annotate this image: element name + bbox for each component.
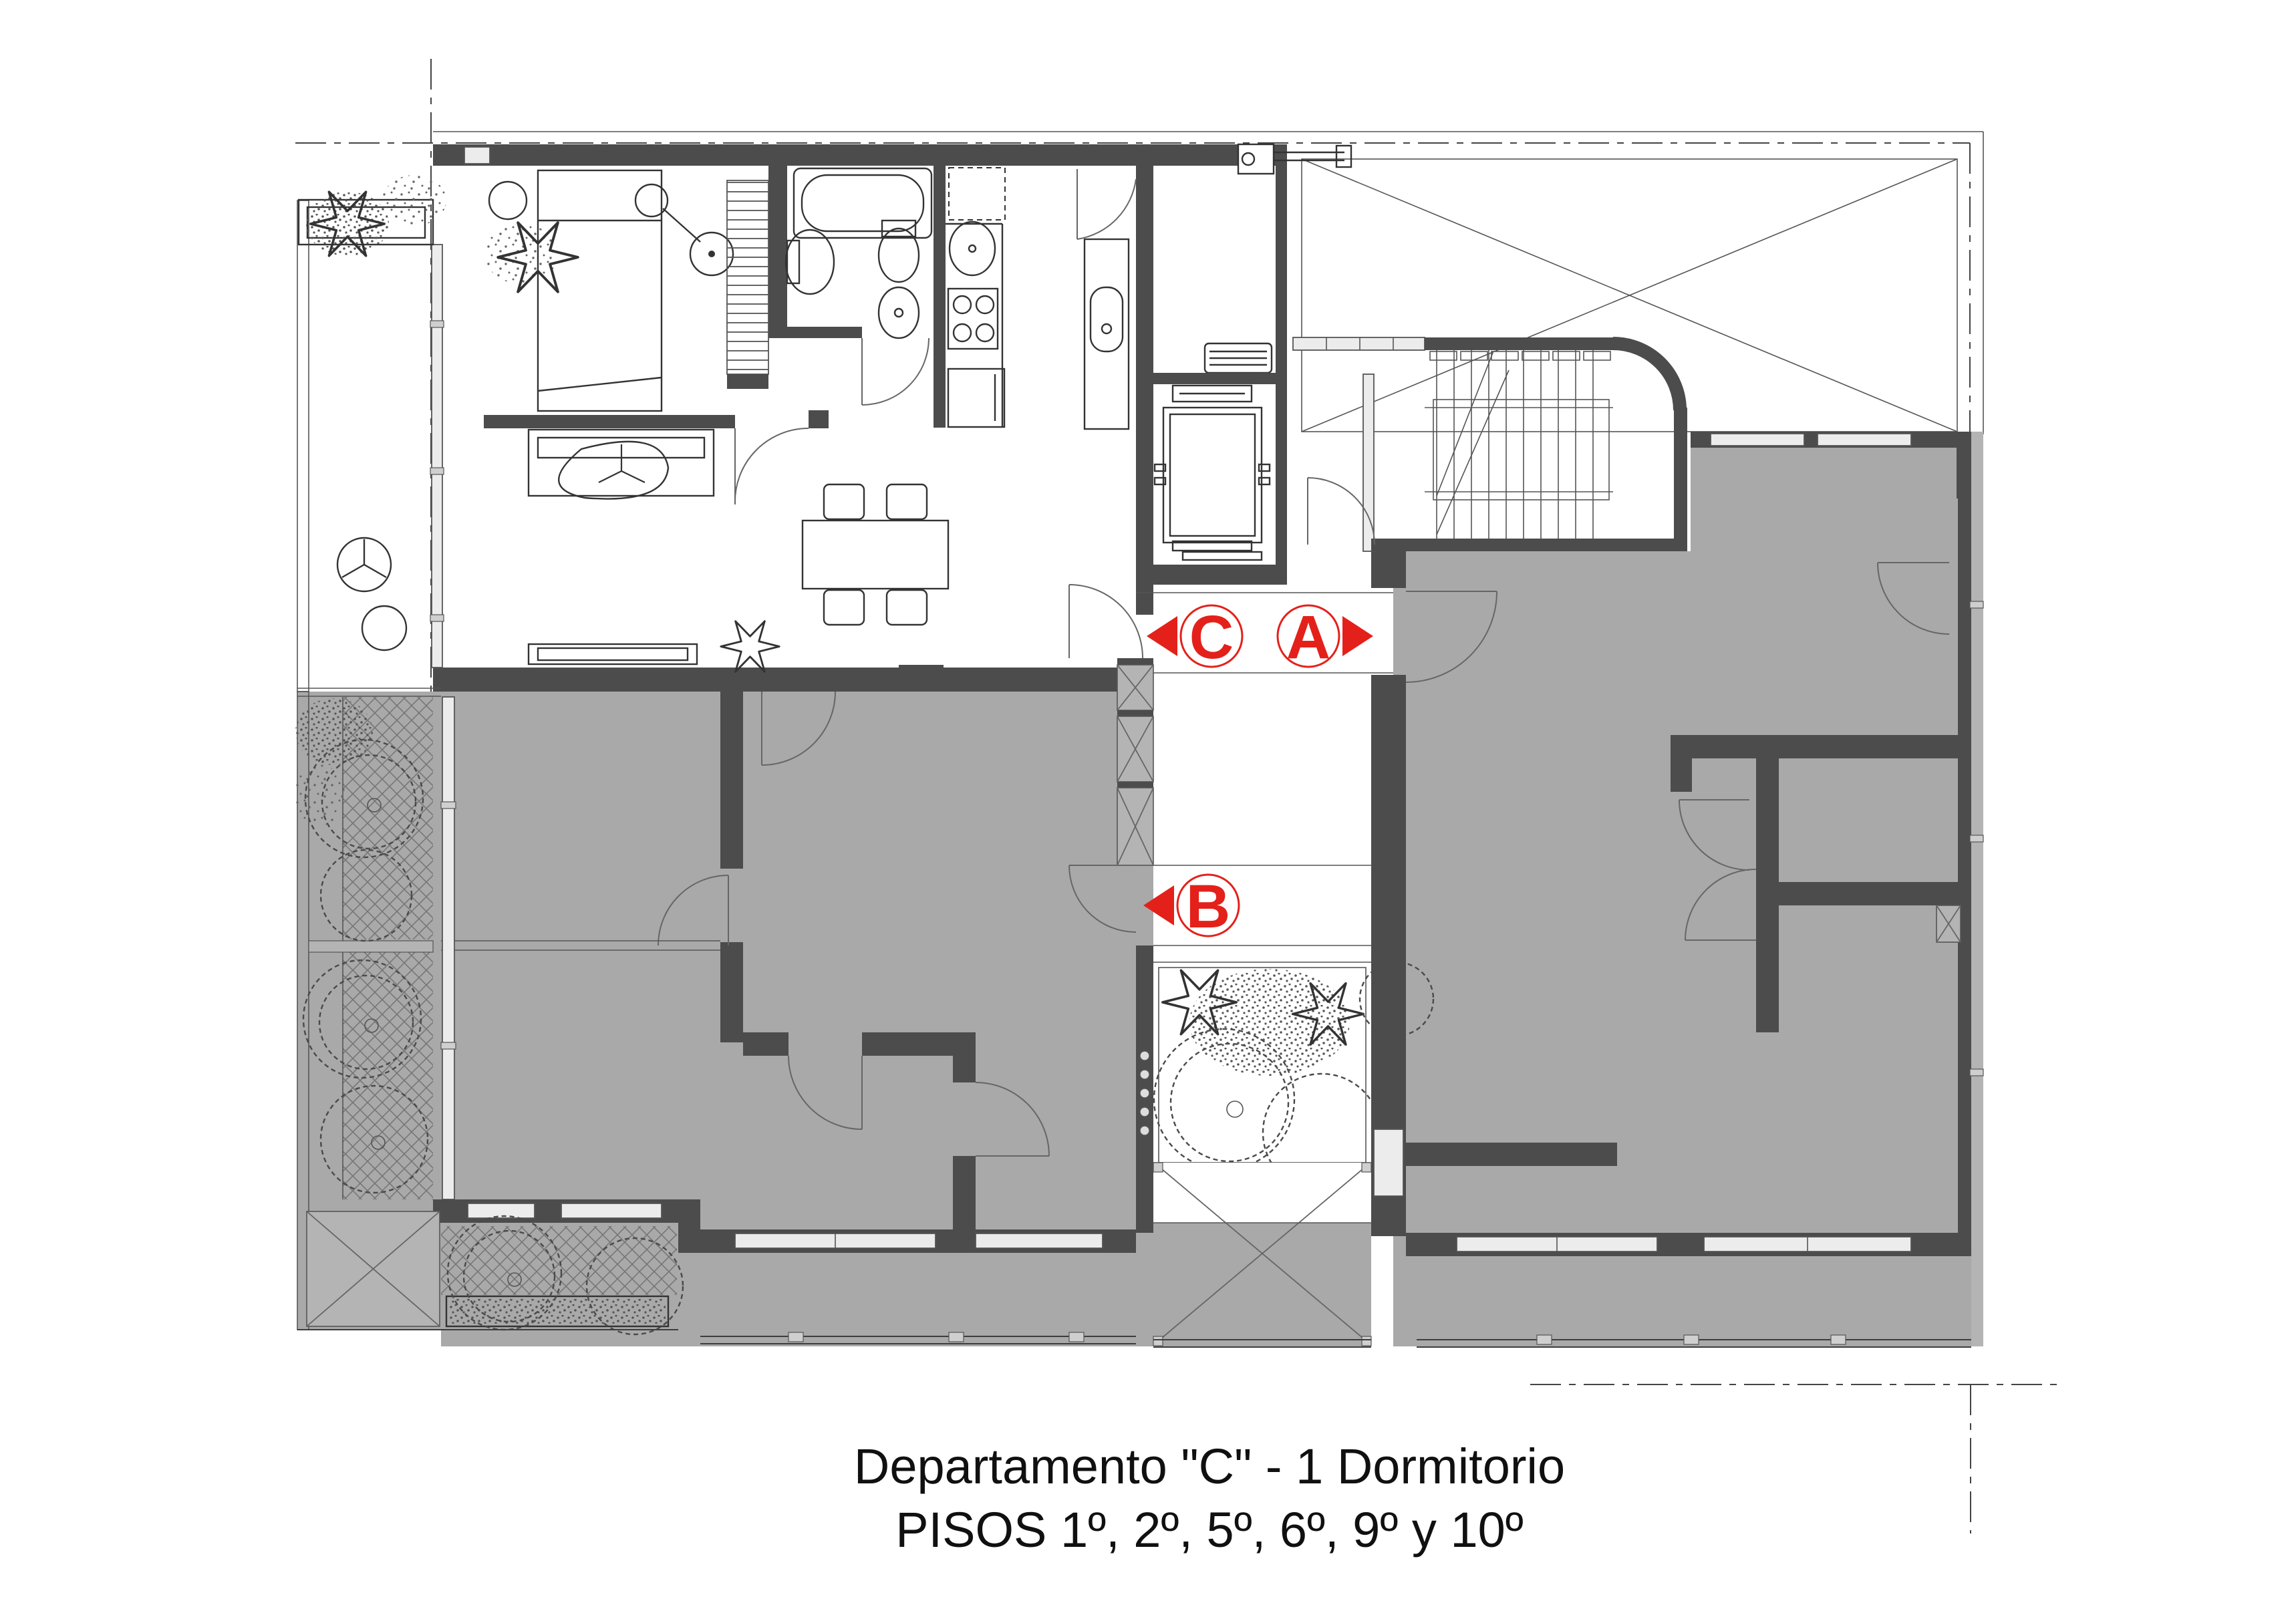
caption-line-2: PISOS 1º, 2º, 5º, 6º, 9º y 10º xyxy=(895,1502,1524,1558)
apartment-c-walls xyxy=(433,144,1287,692)
unit-b-marker-label: B xyxy=(1186,873,1230,941)
closet xyxy=(727,180,768,374)
floor-plan-canvas: C A B Departamento "C" - 1 Dormitorio PI… xyxy=(0,0,2296,1609)
stairs xyxy=(1293,337,1687,551)
air-void xyxy=(1302,159,1957,432)
unit-a-marker-label: A xyxy=(1286,603,1330,672)
service-shafts xyxy=(1117,658,1153,865)
unit-c-marker-label: C xyxy=(1189,603,1234,672)
apartment-c-windows xyxy=(430,245,444,668)
elevator-car xyxy=(1163,408,1262,543)
elevator-guides xyxy=(1155,464,1270,484)
unit-markers: C A B xyxy=(1143,603,1373,941)
stair-treads xyxy=(1425,350,1613,539)
unit-c-arrow-icon xyxy=(1147,616,1177,656)
kitchen-sink xyxy=(950,222,995,275)
dining-table xyxy=(803,521,948,589)
caption: Departamento "C" - 1 Dormitorio PISOS 1º… xyxy=(854,1439,1565,1558)
fridge xyxy=(949,168,1005,220)
sideboard xyxy=(529,644,697,664)
stair-balustrade xyxy=(1430,351,1610,360)
planter-icon xyxy=(362,606,406,650)
living-dining xyxy=(529,430,948,672)
unit-a-arrow-icon xyxy=(1342,616,1373,656)
rug xyxy=(559,442,668,499)
bedroom xyxy=(489,170,768,411)
bidet xyxy=(879,287,919,338)
plant-icon xyxy=(721,621,779,672)
kitchen xyxy=(946,168,1129,429)
caption-line-1: Departamento "C" - 1 Dormitorio xyxy=(854,1439,1565,1494)
sink xyxy=(786,230,834,294)
dining-chairs xyxy=(824,484,927,625)
gas-meter xyxy=(1238,144,1274,174)
lamp-icon xyxy=(635,184,668,216)
floor-plan-drawing: C A B Departamento "C" - 1 Dormitorio PI… xyxy=(0,0,2296,1609)
bathroom xyxy=(786,168,931,338)
elevator xyxy=(1136,384,1287,585)
cabinet xyxy=(948,369,1004,427)
nightstand xyxy=(489,182,527,219)
